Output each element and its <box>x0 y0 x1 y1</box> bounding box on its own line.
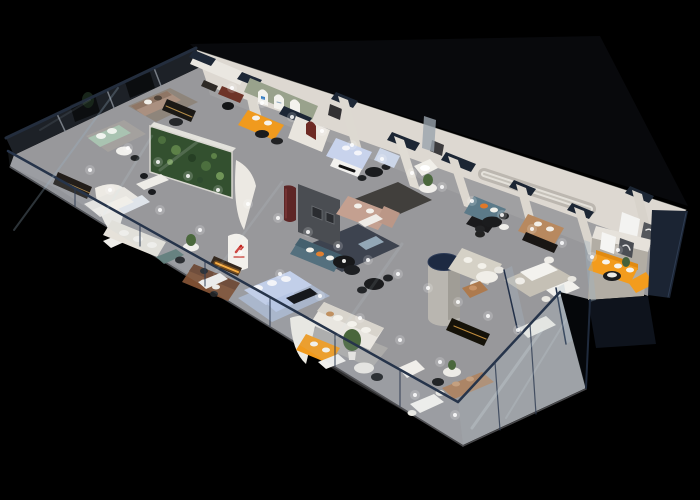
plantwall-leaf-5 <box>216 172 224 180</box>
sofa-greige-cushion-1 <box>464 257 473 263</box>
sofa-mint-cushion-1 <box>96 133 106 139</box>
arch-coffee-table-1 <box>255 130 269 138</box>
ceiling-light-6 <box>410 171 414 175</box>
ceiling-light-10 <box>530 227 534 231</box>
ceiling-light-9 <box>500 213 504 217</box>
ceiling-light-12 <box>590 255 594 259</box>
ceiling-light-13 <box>616 248 620 252</box>
ceiling-light-30 <box>238 250 242 254</box>
sofa-teal-cushion-w2 <box>326 256 334 261</box>
sofa-mint-cushion-2 <box>107 128 117 134</box>
armchair-white-nook-cushion <box>420 165 430 171</box>
desk-b-chair-2 <box>140 173 148 179</box>
ceiling-light-2 <box>290 115 294 119</box>
sofa-taupe-cushion-white <box>144 100 152 105</box>
sofa-white-big-cushion-1 <box>333 315 343 321</box>
plantwall-leaf-8 <box>211 153 217 159</box>
dining-black-top <box>365 167 383 177</box>
wing-front-fascia <box>588 296 656 348</box>
sofa-caramel-cushion-2 <box>546 227 554 232</box>
chaise-tan-cushion-1 <box>452 382 460 387</box>
ceiling-light-21 <box>336 244 340 248</box>
dining-round-right-chair-2 <box>494 267 504 274</box>
ceiling-light-36 <box>88 168 92 172</box>
plant-nook <box>423 174 433 186</box>
dining-square-2-chair-1 <box>542 296 551 302</box>
sofa-teal-cushion-w1 <box>306 248 314 253</box>
dining-square-chair-1 <box>515 278 525 285</box>
ceiling-light-24 <box>426 286 430 290</box>
ceiling-light-14 <box>126 146 130 150</box>
ceiling-light-5 <box>380 157 384 161</box>
ceiling-light-31 <box>278 272 282 276</box>
side-table-white <box>499 224 509 230</box>
ceiling-light-15 <box>156 160 160 164</box>
sofa-teal-cushion-white <box>490 208 498 213</box>
wing-sofa-cushion-3 <box>626 268 634 273</box>
ceiling-light-17 <box>216 188 220 192</box>
wing-sofa-cushion-2 <box>614 264 622 269</box>
plantwall-leaf-7 <box>197 177 203 183</box>
coffee-table-black-2 <box>344 265 360 275</box>
ceiling-light-7 <box>440 185 444 189</box>
corner-room-chair-black <box>222 102 234 110</box>
ceiling-light-26 <box>486 314 490 318</box>
table-round-pair-plant <box>448 360 456 370</box>
wing-coffee-table-tray <box>607 273 617 278</box>
ceiling-light-22 <box>366 258 370 262</box>
side-table-plant-green <box>186 234 196 246</box>
plantwall-leaf-1 <box>158 136 166 144</box>
dining-black-mid-chair-1 <box>475 226 485 233</box>
sofa-teal-cushion-orange <box>480 204 488 209</box>
ceiling-light-20 <box>306 230 310 234</box>
ceiling-light-19 <box>276 216 280 220</box>
ceiling-light-23 <box>396 272 400 276</box>
ceiling-light-35 <box>438 360 442 364</box>
sofa-white-big-cushion-3 <box>361 327 371 333</box>
ceiling-light-1 <box>260 101 264 105</box>
plantwall-leaf-3 <box>188 154 196 162</box>
ceiling-light-39 <box>453 413 457 417</box>
ceiling-light-38 <box>413 393 417 397</box>
ceiling-light-8 <box>470 199 474 203</box>
dining-black-center-chair-1 <box>357 287 367 294</box>
ceiling-light-28 <box>158 208 162 212</box>
ceiling-light-29 <box>198 228 202 232</box>
sofa-blush-cushion-2 <box>366 209 374 214</box>
sofa-taupe-cushion-dark <box>154 96 162 101</box>
arch-coffee-table-2 <box>271 138 283 145</box>
ceiling-light-37 <box>108 188 112 192</box>
ceiling-light-27 <box>516 328 520 332</box>
dining-black-center-chair-2 <box>383 275 393 282</box>
ceiling-light-34 <box>398 338 402 342</box>
sofa-periwinkle-cushion-2 <box>267 280 277 286</box>
ceiling-light-33 <box>358 316 362 320</box>
plantwall-leaf-2 <box>171 145 181 155</box>
sofa-orange-arch-cushion-2 <box>264 121 272 126</box>
sofa-greige-cushion-2 <box>478 263 487 269</box>
dining-round-right <box>476 271 498 283</box>
ceiling-light-3 <box>320 129 324 133</box>
wing-plant <box>622 257 630 267</box>
dining-black-top-chair-1 <box>358 175 367 181</box>
mirror-strip <box>422 116 436 152</box>
ceiling-light-16 <box>186 174 190 178</box>
wing-sofa-cushion-1 <box>602 260 610 265</box>
sofa-teal-cushion-o <box>316 252 324 257</box>
dining-square-2-chair-2 <box>568 276 577 282</box>
sofa-periwinkle-top-cushion-2 <box>354 151 362 156</box>
plantwall-leaf-4 <box>201 161 211 171</box>
sofa-orange-arch-cushion-1 <box>252 116 260 121</box>
ceiling-light-32 <box>318 294 322 298</box>
showroom-stage <box>0 0 700 500</box>
ceiling-light-11 <box>560 241 564 245</box>
table-round-pair-dark <box>432 378 444 386</box>
sofa-white-big-throw <box>326 312 334 317</box>
sofa-blush-cushion-1 <box>354 204 362 209</box>
ceiling-light-0 <box>230 86 234 90</box>
desk-b-chair-1 <box>148 189 156 195</box>
armchair-tan-cushion <box>469 286 477 291</box>
coffee-table-top-black <box>169 118 183 126</box>
ceiling-light-4 <box>350 143 354 147</box>
ceiling-light-18 <box>246 202 250 206</box>
ceiling-light-25 <box>456 300 460 304</box>
dining-square-chair-2 <box>544 257 554 264</box>
coffee-table-tray <box>342 259 346 263</box>
showroom-render <box>0 0 700 500</box>
chaise-tan-cushion-2 <box>466 377 474 382</box>
